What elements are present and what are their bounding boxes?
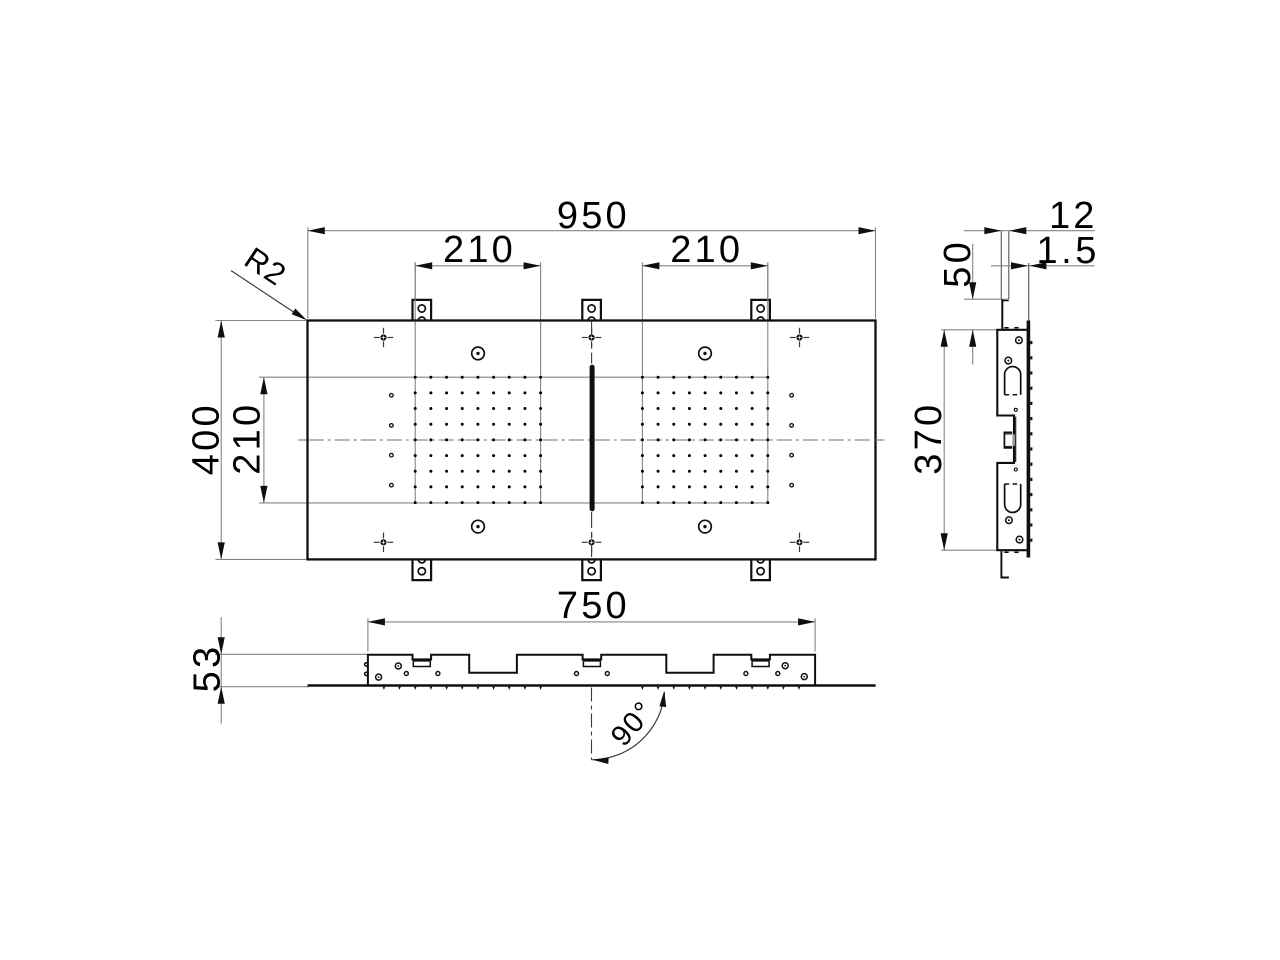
svg-text:370: 370	[908, 402, 950, 475]
svg-text:1.5: 1.5	[1037, 230, 1100, 272]
svg-text:400: 400	[186, 402, 228, 475]
svg-text:210: 210	[227, 402, 269, 475]
svg-text:210: 210	[670, 229, 743, 271]
svg-text:750: 750	[557, 585, 630, 627]
svg-text:53: 53	[187, 644, 229, 693]
svg-text:50: 50	[937, 239, 979, 288]
svg-text:950: 950	[557, 195, 630, 237]
svg-text:210: 210	[443, 229, 516, 271]
